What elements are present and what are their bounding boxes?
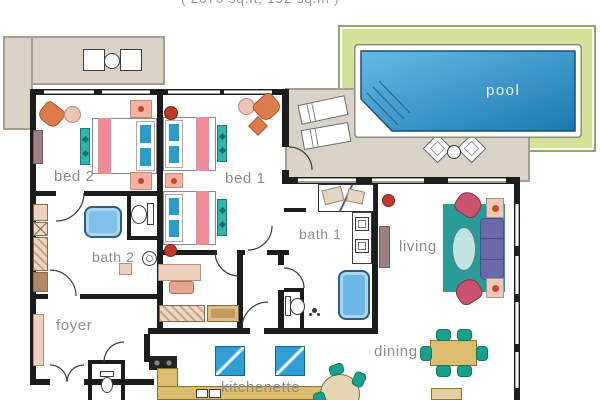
door-arc bbox=[50, 270, 76, 296]
door-arc bbox=[104, 342, 124, 362]
floor-plan: ( 2070 sq.ft; 192 sq.m ) pool bbox=[0, 0, 600, 400]
door-swing-arcs bbox=[0, 0, 600, 400]
door-arc bbox=[284, 268, 304, 288]
door-arc bbox=[56, 193, 84, 221]
door-arc bbox=[215, 252, 239, 276]
door-arc bbox=[242, 302, 268, 328]
door-arc bbox=[248, 226, 272, 250]
door-arc bbox=[289, 147, 312, 170]
entry-door-arc bbox=[50, 365, 84, 382]
